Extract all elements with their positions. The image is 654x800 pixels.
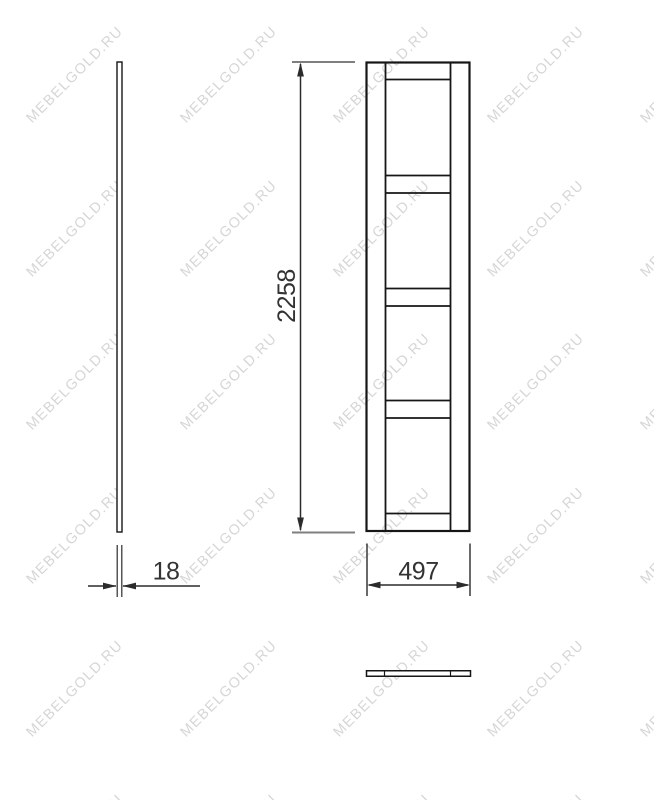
technical-drawing: 2258 497 18 (0, 0, 654, 800)
arrow-down-icon (297, 518, 304, 532)
arrow-right-icon (457, 582, 471, 589)
arrow-right-icon (103, 583, 117, 590)
side-view (117, 62, 122, 532)
dimension-thickness: 18 (88, 545, 200, 597)
arrow-left-icon (123, 583, 137, 590)
top-view (367, 671, 471, 677)
top-panel-outline (367, 671, 471, 677)
dimension-height: 2258 (273, 62, 355, 533)
side-panel-outline (117, 62, 122, 532)
arrow-up-icon (297, 63, 304, 77)
arrow-left-icon (367, 582, 381, 589)
dim-height-label: 2258 (273, 269, 301, 323)
dim-thickness-label: 18 (153, 558, 180, 586)
drawing-page: MEBELGOLD.RUMEBELGOLD.RUMEBELGOLD.RUMEBE… (0, 0, 654, 800)
dimension-width: 497 (367, 544, 470, 597)
front-view (367, 63, 470, 532)
frame-outline (367, 63, 470, 532)
dim-width-label: 497 (398, 558, 438, 586)
